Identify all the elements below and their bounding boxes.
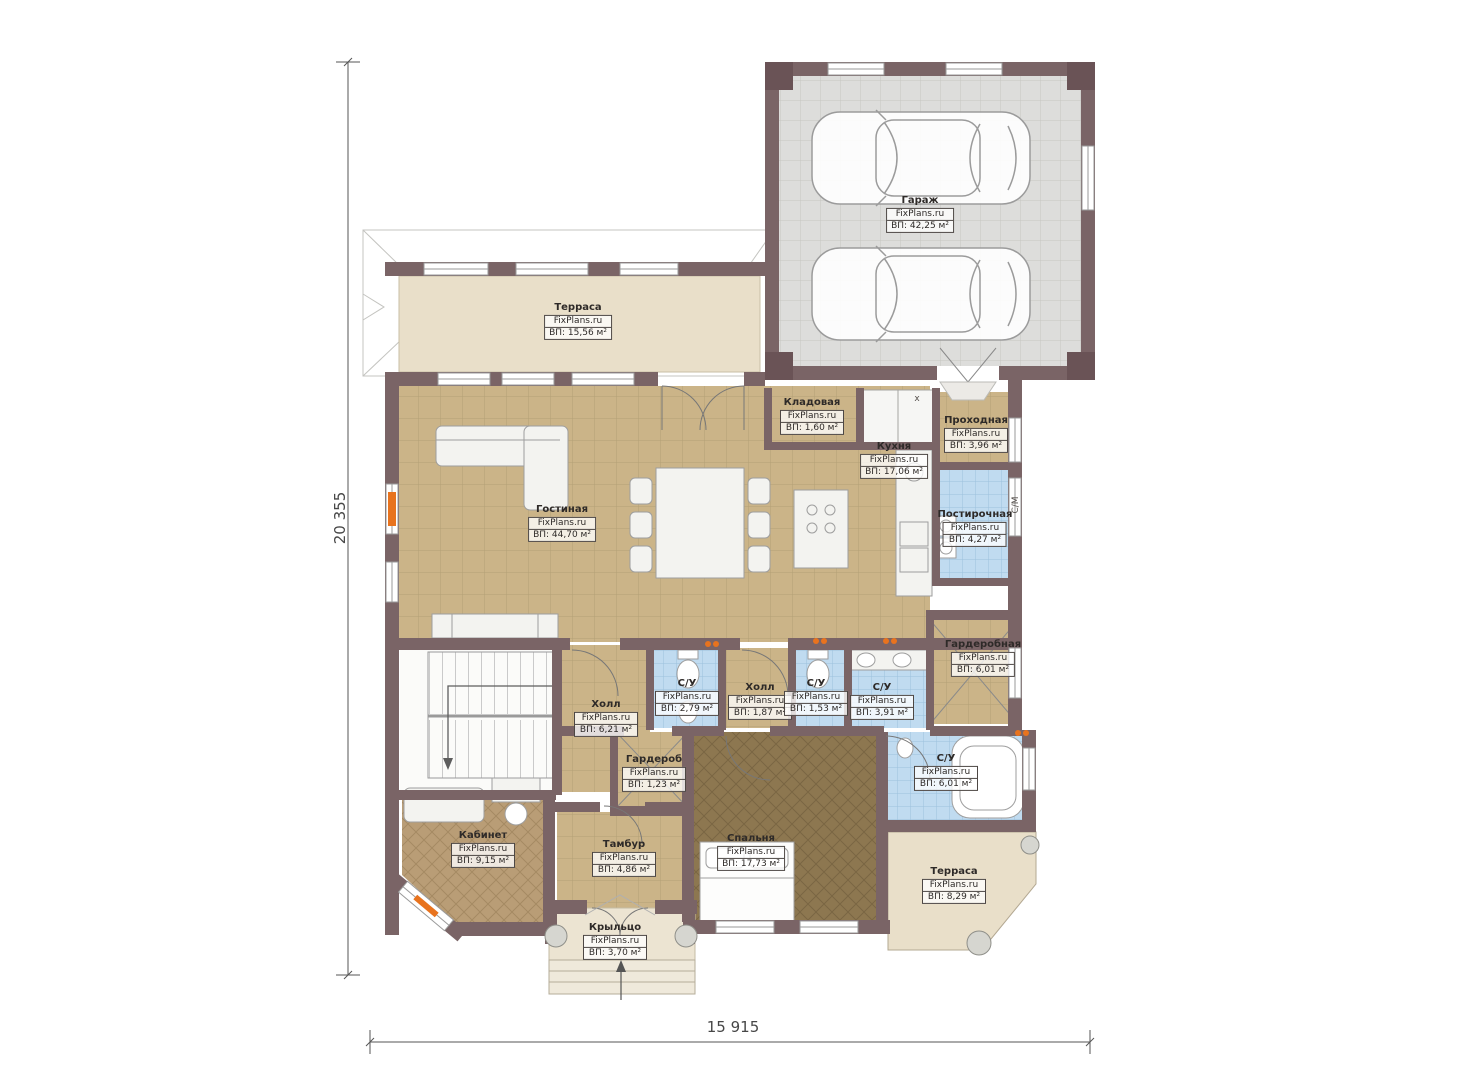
floor-plan-drawing bbox=[0, 0, 1474, 1080]
sofa-chaise-icon bbox=[524, 426, 568, 510]
column-icon bbox=[967, 931, 991, 955]
car-icon bbox=[812, 246, 1030, 342]
kitchen-counter-icon bbox=[896, 450, 932, 596]
sink-icon bbox=[679, 701, 697, 723]
column-icon bbox=[675, 925, 697, 947]
chair-icon bbox=[505, 803, 527, 825]
dining-table-icon bbox=[656, 468, 744, 578]
stairs-icon bbox=[428, 652, 558, 778]
toilet-icon bbox=[677, 650, 699, 688]
dimension-left: 20 355 bbox=[331, 492, 349, 545]
terrace-bottom-floor bbox=[888, 832, 1036, 950]
car-icon bbox=[812, 110, 1030, 206]
porch-floor bbox=[549, 908, 695, 960]
sink-icon bbox=[897, 738, 913, 758]
terrace-top-floor bbox=[399, 276, 760, 372]
closet-mark: х bbox=[914, 394, 919, 404]
tv-stand-icon bbox=[432, 614, 558, 638]
column-icon bbox=[545, 925, 567, 947]
hall-small-floor bbox=[724, 648, 790, 728]
bed-icon bbox=[700, 842, 794, 928]
kitchen-island-icon bbox=[794, 490, 848, 568]
floor-plan-page: Гараж FixPlans.ruВП: 42,25 м² Терраса Fi… bbox=[0, 0, 1474, 1080]
bathtub-icon bbox=[952, 736, 1024, 818]
vestibule-floor bbox=[557, 812, 682, 908]
column-icon bbox=[1021, 836, 1039, 854]
passage-floor bbox=[940, 392, 1008, 466]
washer-mark: С/М bbox=[1011, 496, 1021, 513]
radiator-icon bbox=[388, 492, 396, 526]
dimension-bottom: 15 915 bbox=[707, 1018, 760, 1036]
toilet-icon bbox=[807, 650, 829, 688]
pantry-floor bbox=[768, 388, 858, 444]
